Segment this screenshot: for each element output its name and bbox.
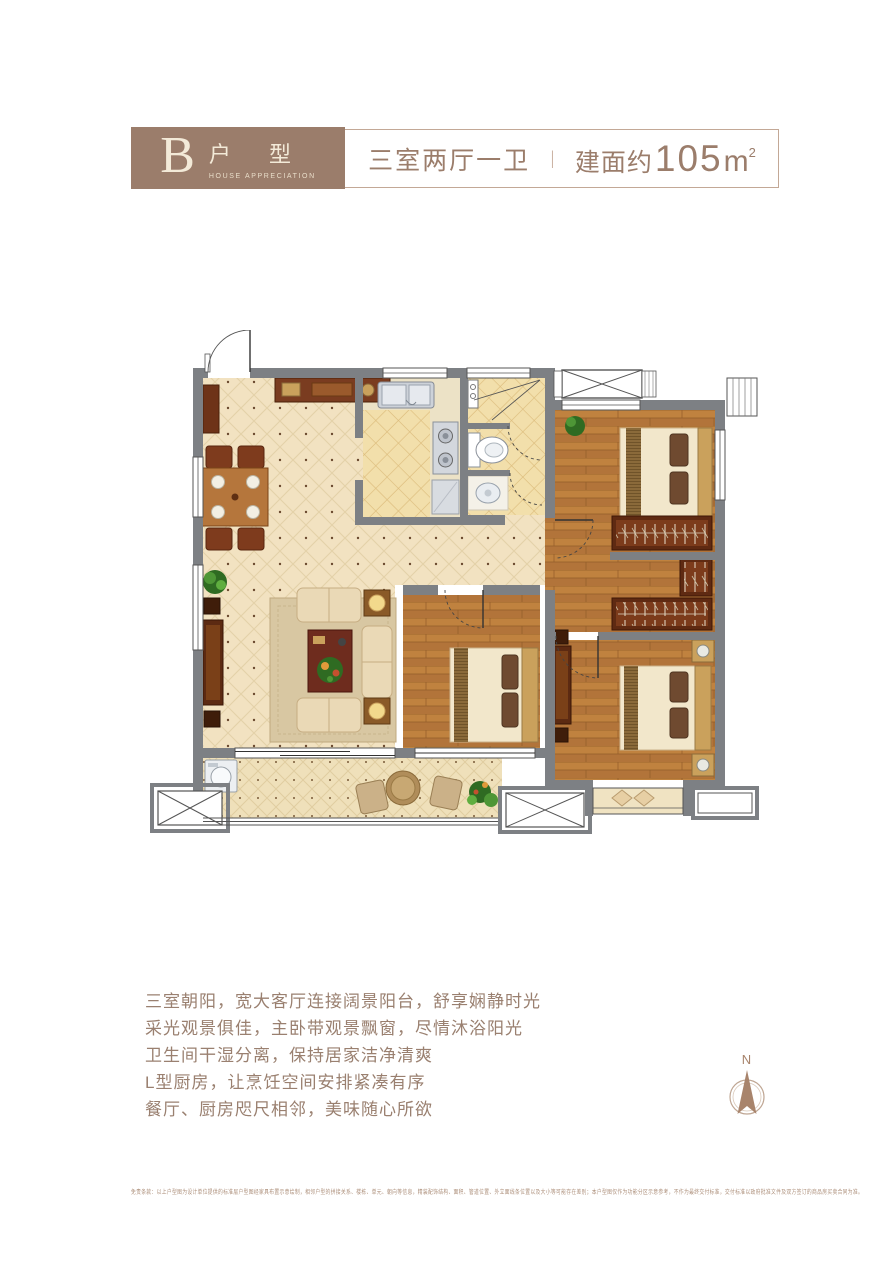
bay-window [585,780,691,816]
kitchen-floor [363,410,430,517]
sideboard [275,378,390,402]
unit-subtitle: HOUSE APPRECIATION [209,173,316,180]
window [715,430,725,500]
unit-title: 户 型 [209,137,307,169]
louver-window [727,378,757,416]
flyer-page: B 户 型 HOUSE APPRECIATION 三室两厅一卫 | 建面约 10… [0,0,889,1278]
disclaimer-text: 免责条款：以上户型图为设计单位提供的标准层户型图经家具布置示意绘制，相邻户型的拼… [131,1187,851,1196]
wardrobe [680,558,712,596]
window [193,565,203,650]
window [193,457,203,517]
bedroom2-set [450,648,538,742]
balcony-chair [429,775,463,810]
entry-door [205,330,250,372]
window [383,368,447,378]
wardrobe [612,516,712,550]
header-summary: 三室两厅一卫 | 建面约 105 m 2 [345,129,779,188]
description-block: 三室朝阳，宽大客厅连接阔景阳台，舒享娴静时光 采光观景俱佳，主卧带观景飘窗，尽情… [145,988,541,1123]
unit-letter: B [160,130,195,182]
description-line: 三室朝阳，宽大客厅连接阔景阳台，舒享娴静时光 [145,988,541,1015]
unit-type-badge: B 户 型 HOUSE APPRECIATION [131,127,345,189]
window [415,748,535,758]
window-ledge [693,788,757,818]
description-line: 采光观景俱佳，主卧带观景飘窗，尽情沐浴阳光 [145,1015,541,1042]
area-number: 105 [655,138,723,180]
description-line: 餐厅、厨房咫尺相邻，美味随心所欲 [145,1096,541,1123]
balcony-railing [203,818,502,825]
floor-plan [150,330,760,835]
layout-text: 三室两厅一卫 [368,141,530,177]
ac-platform [152,785,228,831]
compass: N [722,1052,772,1123]
compass-north-label: N [722,1052,772,1067]
balcony-chair [355,779,389,814]
header-divider: | [551,148,554,169]
wardrobe [612,598,712,630]
area-text: 建面约 105 m 2 [575,138,756,180]
shoe-cabinet [203,385,219,433]
ac-platform [500,788,590,832]
compass-icon [724,1068,770,1118]
window [467,368,530,378]
description-line: 卫生间干湿分离，保持居家洁净清爽 [145,1042,541,1069]
header: B 户 型 HOUSE APPRECIATION 三室两厅一卫 | 建面约 10… [131,127,779,189]
ac-platform [554,370,656,398]
window [562,400,640,410]
description-line: L型厨房，让烹饪空间安排紧凑有序 [145,1069,541,1096]
sliding-door [235,748,395,758]
